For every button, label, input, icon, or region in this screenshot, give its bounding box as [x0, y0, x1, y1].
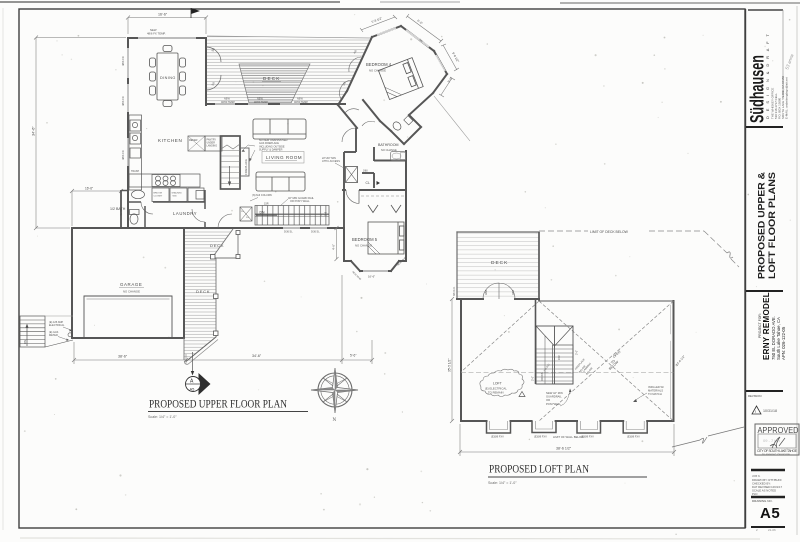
svg-text:D E S I G N & D R A F T: D E S I G N & D R A F T: [765, 32, 770, 119]
svg-text:53 anna: 53 anna: [784, 53, 794, 70]
svg-text:DECK: DECK: [491, 260, 508, 266]
svg-text:48/6 FX: 48/6 FX: [121, 56, 125, 66]
svg-text:REVISION:: REVISION:: [748, 394, 762, 398]
svg-text:6'-0": 6'-0": [416, 19, 423, 26]
svg-text:GUARDRAIL: GUARDRAIL: [546, 395, 562, 399]
svg-text:REFER: REFER: [189, 139, 198, 142]
svg-text:GARAGE: GARAGE: [120, 282, 142, 287]
svg-text:OPEN: OPEN: [612, 349, 622, 358]
svg-text:10/31/18: 10/31/18: [763, 409, 777, 413]
svg-text:(E)5/8 FXV: (E)5/8 FXV: [491, 435, 504, 439]
svg-text:48/60 TEMP.: 48/60 TEMP.: [254, 101, 269, 104]
svg-text:(N) 6x6 COLUMN: (N) 6x6 COLUMN: [252, 194, 272, 197]
svg-text:3'-0": 3'-0": [447, 76, 454, 83]
svg-text:A5: A5: [760, 505, 780, 522]
svg-text:45/45: 45/45: [120, 209, 123, 216]
svg-text:OR PONY WALL: OR PONY WALL: [290, 199, 310, 203]
svg-text:34'-6": 34'-6": [32, 126, 36, 136]
svg-text:Scale: 1/4" = 1'-0": Scale: 1/4" = 1'-0": [148, 415, 177, 419]
svg-text:5/36 SL: 5/36 SL: [284, 231, 293, 234]
svg-text:NO CHANGE: NO CHANGE: [381, 148, 397, 152]
svg-text:38'-6": 38'-6": [118, 355, 128, 359]
svg-text:STACKED: STACKED: [172, 192, 183, 195]
svg-text:PLANNING DIVISION: PLANNING DIVISION: [762, 453, 790, 457]
svg-text:7'-6 R/D: 7'-6 R/D: [543, 363, 550, 372]
svg-text:3/68: 3/68: [363, 171, 368, 173]
svg-text:19R: 19R: [558, 355, 561, 360]
svg-text:DN: DN: [260, 211, 265, 215]
svg-text:38'-6 1/2": 38'-6 1/2": [556, 447, 572, 451]
svg-text:(E)5/8 FXV: (E)5/8 FXV: [627, 435, 640, 439]
svg-text:NEW 42" MIN: NEW 42" MIN: [546, 391, 563, 395]
svg-text:48/6 FX: 48/6 FX: [121, 150, 125, 160]
svg-text:INFILLED W/: INFILLED W/: [648, 385, 664, 389]
svg-text:3'-0": 3'-0": [576, 350, 579, 355]
svg-text:LAUNDRY: LAUNDRY: [173, 211, 197, 216]
svg-text:CITY OF SOUTH LAKE TAHOE: CITY OF SOUTH LAKE TAHOE: [757, 449, 798, 453]
svg-text:3'-0": 3'-0": [532, 376, 535, 381]
svg-text:METER: METER: [49, 334, 58, 337]
svg-text:TRASH: TRASH: [131, 170, 139, 173]
svg-text:16'-6": 16'-6": [158, 13, 168, 17]
svg-text:5'-8 1/2": 5'-8 1/2": [371, 16, 383, 24]
svg-text:NO CHANGE: NO CHANGE: [369, 69, 386, 73]
svg-text:OR: OR: [546, 398, 550, 402]
svg-text:TO MATCH: TO MATCH: [648, 392, 662, 396]
svg-text:48/60 TEMP.: 48/60 TEMP.: [221, 101, 236, 104]
svg-text:35'-5 1/2": 35'-5 1/2": [448, 359, 452, 372]
svg-text:3'-6: 3'-6: [325, 211, 328, 216]
svg-text:FIREPLACE: FIREPLACE: [244, 159, 248, 175]
svg-text:NO CHANGE: NO CHANGE: [123, 290, 140, 294]
svg-text:48/60 TEMP.: 48/60 TEMP.: [294, 101, 309, 104]
svg-text:PONYWALL: PONYWALL: [546, 402, 561, 406]
svg-text:5/36 SL: 5/36 SL: [311, 231, 320, 234]
svg-text:W/D: W/D: [173, 195, 178, 197]
svg-text:15R: 15R: [264, 203, 269, 206]
svg-text:DRAWING NO.: DRAWING NO.: [752, 499, 773, 503]
svg-text:DN: DN: [23, 340, 27, 344]
svg-text:LOFT FLOOR PLANS: LOFT FLOOR PLANS: [767, 172, 777, 279]
svg-text:PROPOSED UPPER &: PROPOSED UPPER &: [757, 171, 767, 279]
svg-text:LIVING ROOM: LIVING ROOM: [266, 155, 302, 160]
svg-text:1/2 BATH: 1/2 BATH: [110, 207, 126, 211]
svg-text:SUPPLY & DAMPER: SUPPLY & DAMPER: [259, 149, 283, 152]
svg-text:5'-6": 5'-6": [350, 354, 356, 358]
svg-text:BEDROOM 4: BEDROOM 4: [366, 62, 392, 67]
svg-text:A5: A5: [190, 387, 196, 392]
svg-text:21-06: 21-06: [768, 528, 776, 532]
svg-text:DECK: DECK: [196, 289, 210, 294]
svg-text:BEDROOM 5: BEDROOM 5: [352, 237, 378, 242]
svg-text:3/6 R.O.: 3/6 R.O.: [453, 286, 456, 296]
svg-text:48/6 FX: 48/6 FX: [121, 96, 125, 106]
svg-text:APPROVED: APPROVED: [758, 426, 799, 435]
svg-text:13'-6 1/2": 13'-6 1/2": [675, 354, 686, 366]
svg-text:3/68: 3/68: [484, 289, 488, 295]
svg-text:2: 2: [756, 528, 758, 532]
svg-text:ATTIC ACCESS: ATTIC ACCESS: [322, 160, 340, 163]
svg-text:TO REMAIN: TO REMAIN: [488, 391, 504, 395]
svg-text:4'-6": 4'-6": [332, 244, 336, 250]
svg-text:NO CHANGE: NO CHANGE: [355, 244, 372, 248]
svg-text:(E)5/8 FXV: (E)5/8 FXV: [534, 435, 547, 439]
svg-text:BROOM: BROOM: [154, 193, 162, 195]
svg-text:ELECTRICAL: ELECTRICAL: [49, 324, 65, 327]
svg-text:E-MAIL: anderbergdsgn@att.net: E-MAIL: anderbergdsgn@att.net: [785, 77, 789, 119]
svg-text:48/6 FX TEMP.: 48/6 FX TEMP.: [147, 32, 166, 36]
svg-text:NEW 45/45: NEW 45/45: [351, 271, 361, 281]
svg-text:APN: 026-122-05: APN: 026-122-05: [781, 326, 786, 360]
svg-text:KITCHEN: KITCHEN: [158, 138, 182, 143]
svg-text:CLOSET: CLOSET: [154, 195, 163, 197]
svg-text:MATERIALS: MATERIALS: [648, 389, 663, 393]
svg-text:LANDING: LANDING: [207, 145, 218, 148]
svg-text:9'-8 1/2": 9'-8 1/2": [451, 52, 460, 64]
svg-text:PROPOSED UPPER FLOOR PLAN: PROPOSED UPPER FLOOR PLAN: [149, 399, 288, 411]
svg-text:!: !: [755, 409, 756, 414]
svg-text:DECK: DECK: [263, 76, 281, 81]
svg-text:DOWN: DOWN: [540, 372, 544, 381]
svg-text:Scale: 1/4" = 1'-0": Scale: 1/4" = 1'-0": [488, 481, 517, 485]
svg-text:16'-6": 16'-6": [85, 187, 93, 191]
svg-text:CL: CL: [366, 181, 370, 185]
svg-text:ERNY REMODEL: ERNY REMODEL: [762, 292, 771, 360]
svg-text:LIMIT OF WALL BELOW: LIMIT OF WALL BELOW: [553, 435, 584, 439]
svg-text:3/68: 3/68: [511, 289, 515, 295]
svg-text:BATHROOM: BATHROOM: [378, 143, 399, 147]
svg-text:LOFT: LOFT: [493, 382, 502, 386]
svg-text:16'-6": 16'-6": [368, 275, 375, 279]
svg-text:PLN: PLN: [752, 492, 757, 496]
svg-text:34'-6": 34'-6": [252, 354, 262, 358]
svg-text:DINING: DINING: [160, 76, 176, 80]
svg-text:PROPOSED LOFT PLAN: PROPOSED LOFT PLAN: [489, 464, 590, 476]
svg-text:N: N: [333, 418, 337, 423]
svg-text:LIMIT OF DECK BELOW: LIMIT OF DECK BELOW: [590, 230, 629, 234]
